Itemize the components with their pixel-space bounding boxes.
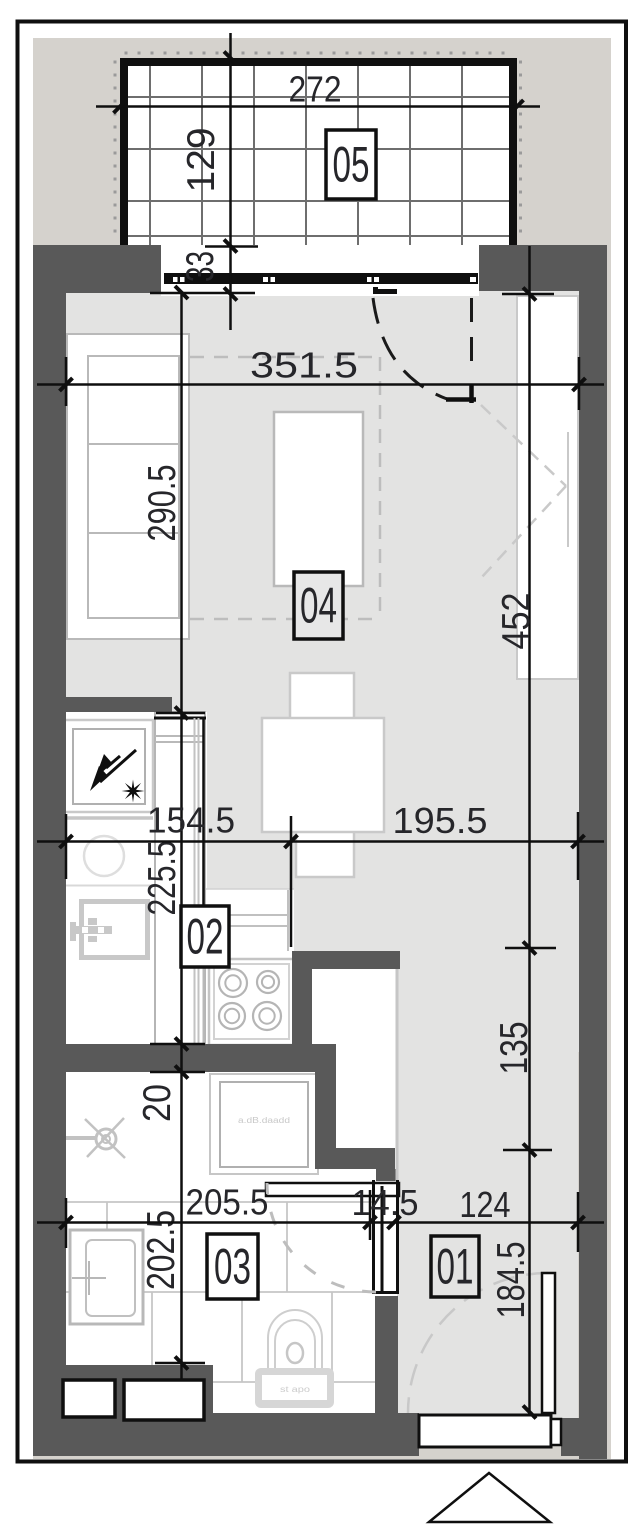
svg-text:205.5: 205.5 (186, 1182, 269, 1223)
svg-text:129: 129 (180, 128, 223, 193)
svg-text:290.5: 290.5 (141, 465, 184, 542)
svg-text:124: 124 (460, 1184, 511, 1225)
svg-text:184.5: 184.5 (490, 1242, 533, 1319)
svg-text:a.dB.daadd: a.dB.daadd (238, 1116, 290, 1125)
svg-text:03: 03 (214, 1239, 251, 1295)
svg-text:452: 452 (495, 593, 538, 650)
svg-text:14.5: 14.5 (352, 1182, 419, 1223)
svg-text:02: 02 (187, 909, 224, 965)
svg-text:33: 33 (179, 251, 222, 282)
svg-text:272: 272 (289, 69, 342, 110)
svg-text:351.5: 351.5 (250, 345, 358, 386)
svg-text:154.5: 154.5 (147, 800, 235, 841)
svg-text:20: 20 (136, 1084, 179, 1122)
svg-text:195.5: 195.5 (393, 800, 488, 841)
svg-text:225.5: 225.5 (141, 841, 184, 916)
svg-text:04: 04 (300, 578, 337, 634)
svg-text:05: 05 (333, 137, 370, 193)
svg-text:st apo: st apo (280, 1385, 311, 1394)
svg-text:135: 135 (493, 1022, 536, 1075)
svg-text:01: 01 (437, 1239, 474, 1295)
